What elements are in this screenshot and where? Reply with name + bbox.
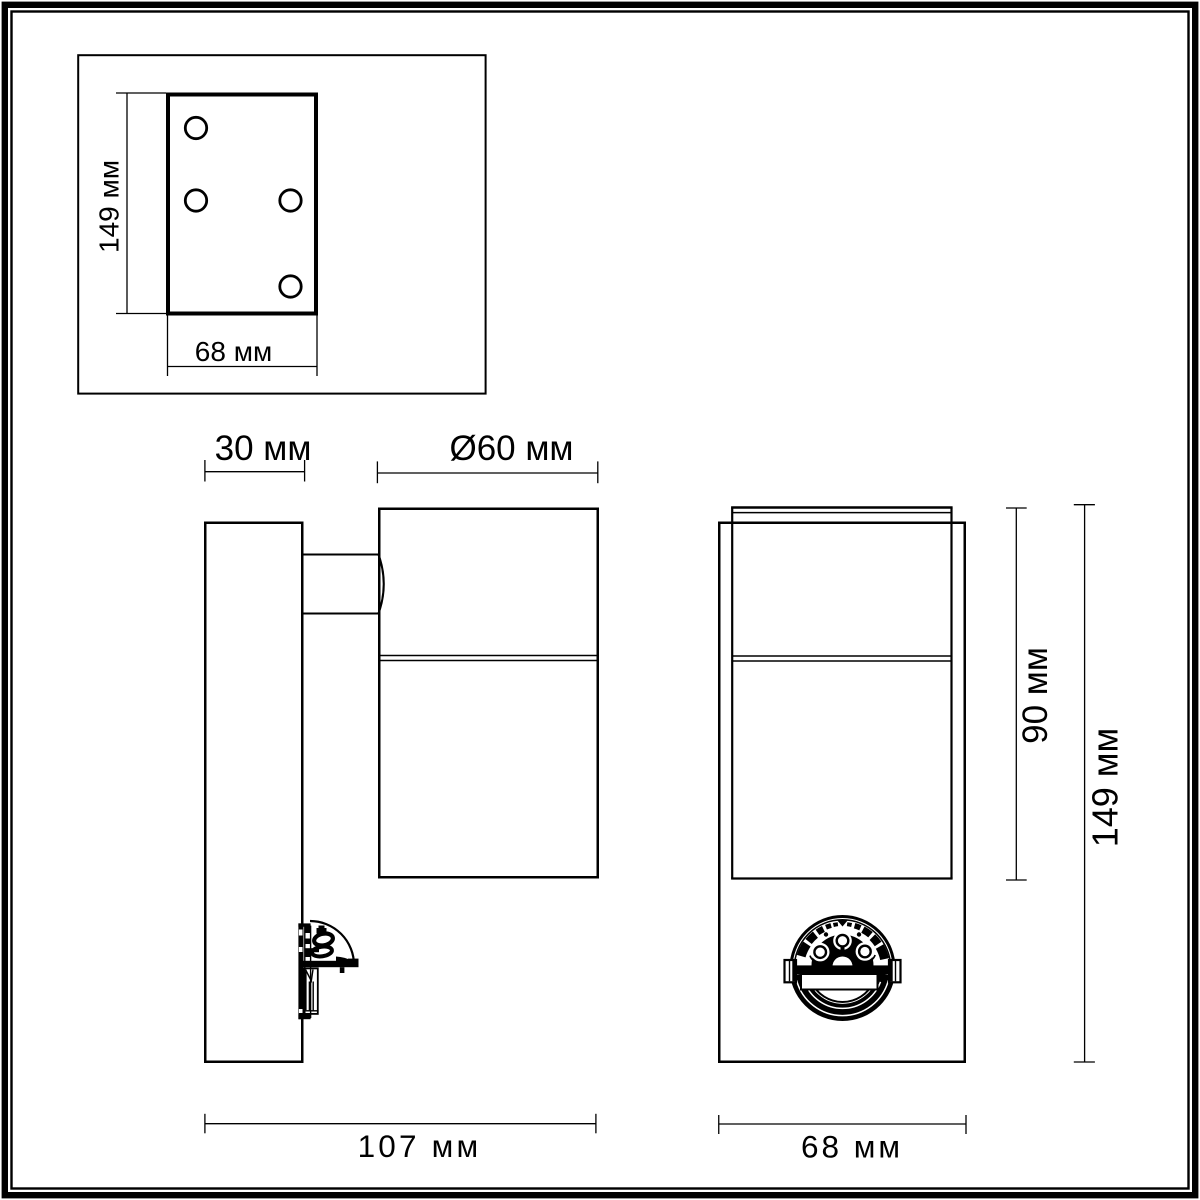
- svg-text:149 мм: 149 мм: [94, 160, 125, 253]
- svg-text:90 мм: 90 мм: [1016, 647, 1055, 744]
- svg-text:107 мм: 107 мм: [358, 1128, 482, 1164]
- svg-text:Ø60 мм: Ø60 мм: [449, 429, 573, 468]
- svg-text:68 мм: 68 мм: [195, 336, 272, 367]
- svg-text:149 мм: 149 мм: [1084, 728, 1125, 848]
- svg-text:68 мм: 68 мм: [801, 1129, 903, 1165]
- svg-text:30 мм: 30 мм: [215, 429, 312, 468]
